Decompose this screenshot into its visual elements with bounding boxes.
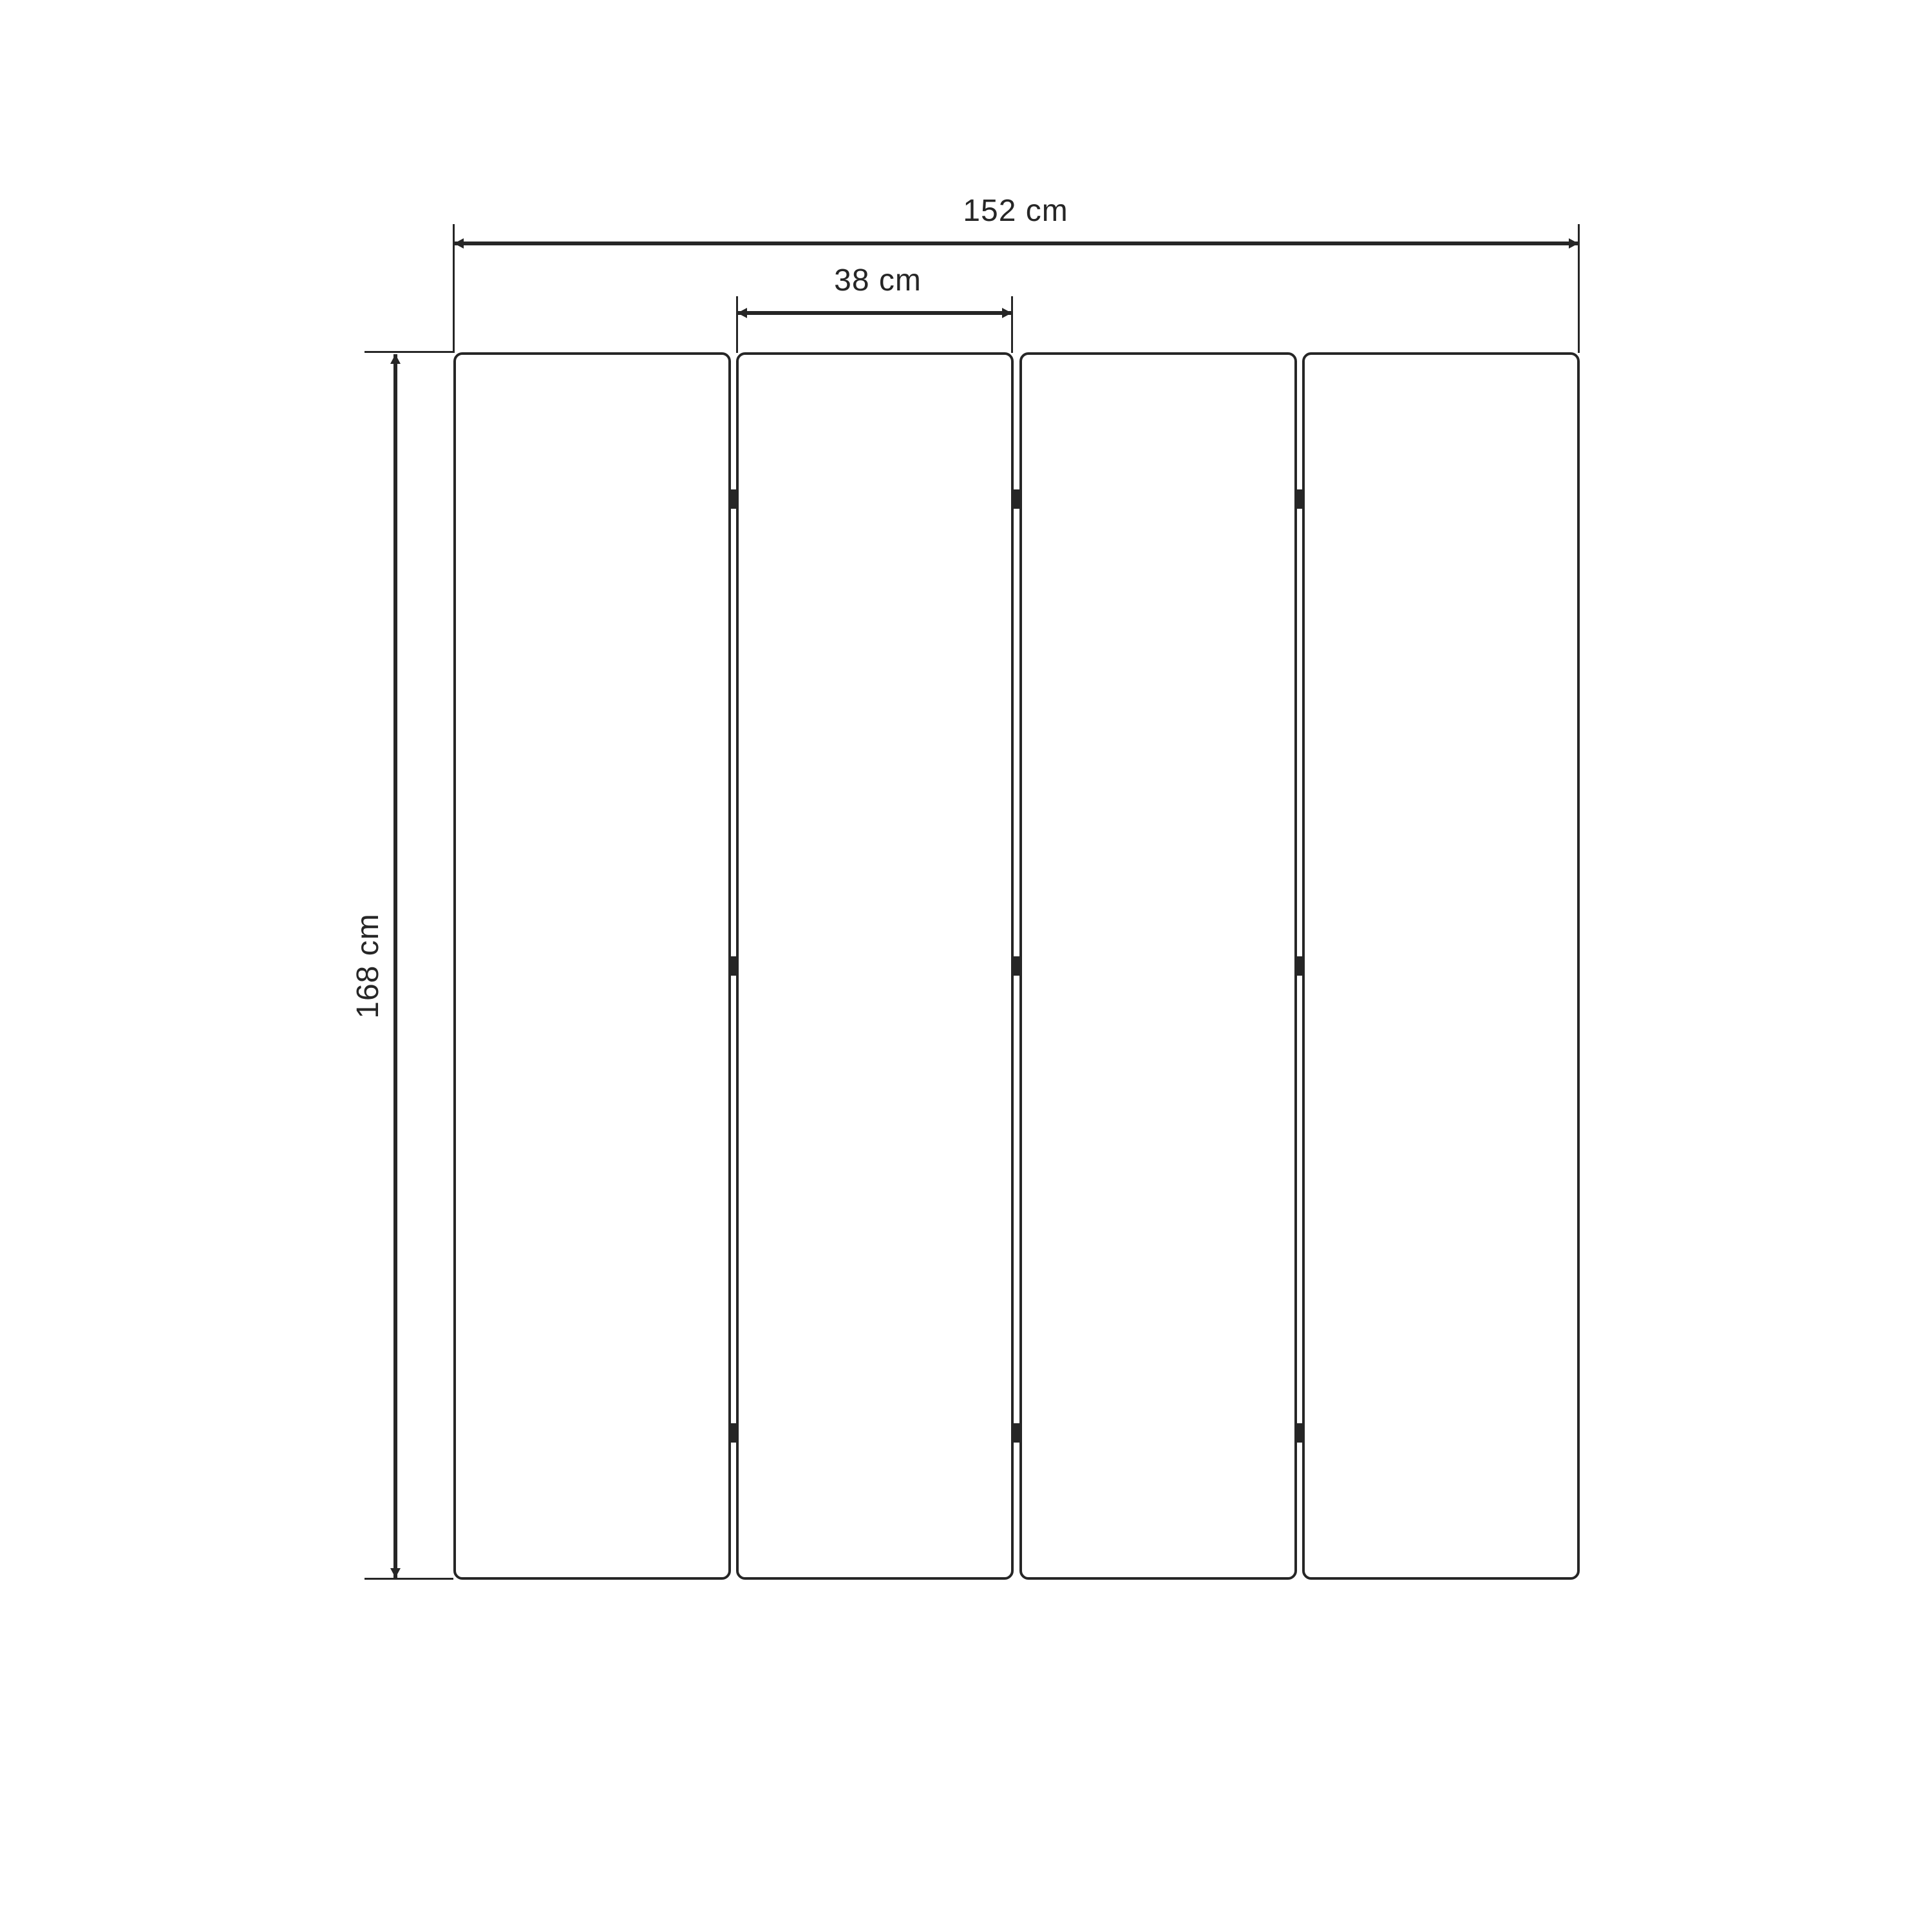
hinge	[729, 489, 737, 509]
arrow-down-icon	[390, 1568, 401, 1578]
panel-3	[1019, 352, 1297, 1580]
panel-2	[736, 352, 1014, 1580]
arrow-left-icon	[454, 238, 464, 249]
hinge	[729, 956, 737, 976]
arrow-up-icon	[390, 354, 401, 364]
panel-4	[1302, 352, 1580, 1580]
extension-line	[365, 351, 453, 353]
hinge	[1296, 1423, 1304, 1443]
arrow-left-icon	[737, 308, 747, 318]
dimension-line	[393, 354, 397, 1578]
arrow-right-icon	[1002, 308, 1012, 318]
hinge	[1012, 956, 1021, 976]
extension-line	[1011, 296, 1013, 353]
extension-line	[736, 296, 738, 353]
total-width-label: 152 cm	[963, 195, 1068, 227]
hinge	[1012, 489, 1021, 509]
dimension-line	[454, 241, 1578, 245]
hinge	[1296, 956, 1304, 976]
hinge	[729, 1423, 737, 1443]
panel-1	[453, 352, 731, 1580]
extension-line	[365, 1578, 453, 1580]
height-label: 168 cm	[353, 913, 384, 1018]
arrow-right-icon	[1569, 238, 1578, 249]
hinge	[1296, 489, 1304, 509]
panel-width-label: 38 cm	[834, 265, 922, 297]
hinge	[1012, 1423, 1021, 1443]
dimension-line	[737, 311, 1012, 315]
dimension-diagram: 152 cm 38 cm 168 cm	[0, 0, 1932, 1932]
